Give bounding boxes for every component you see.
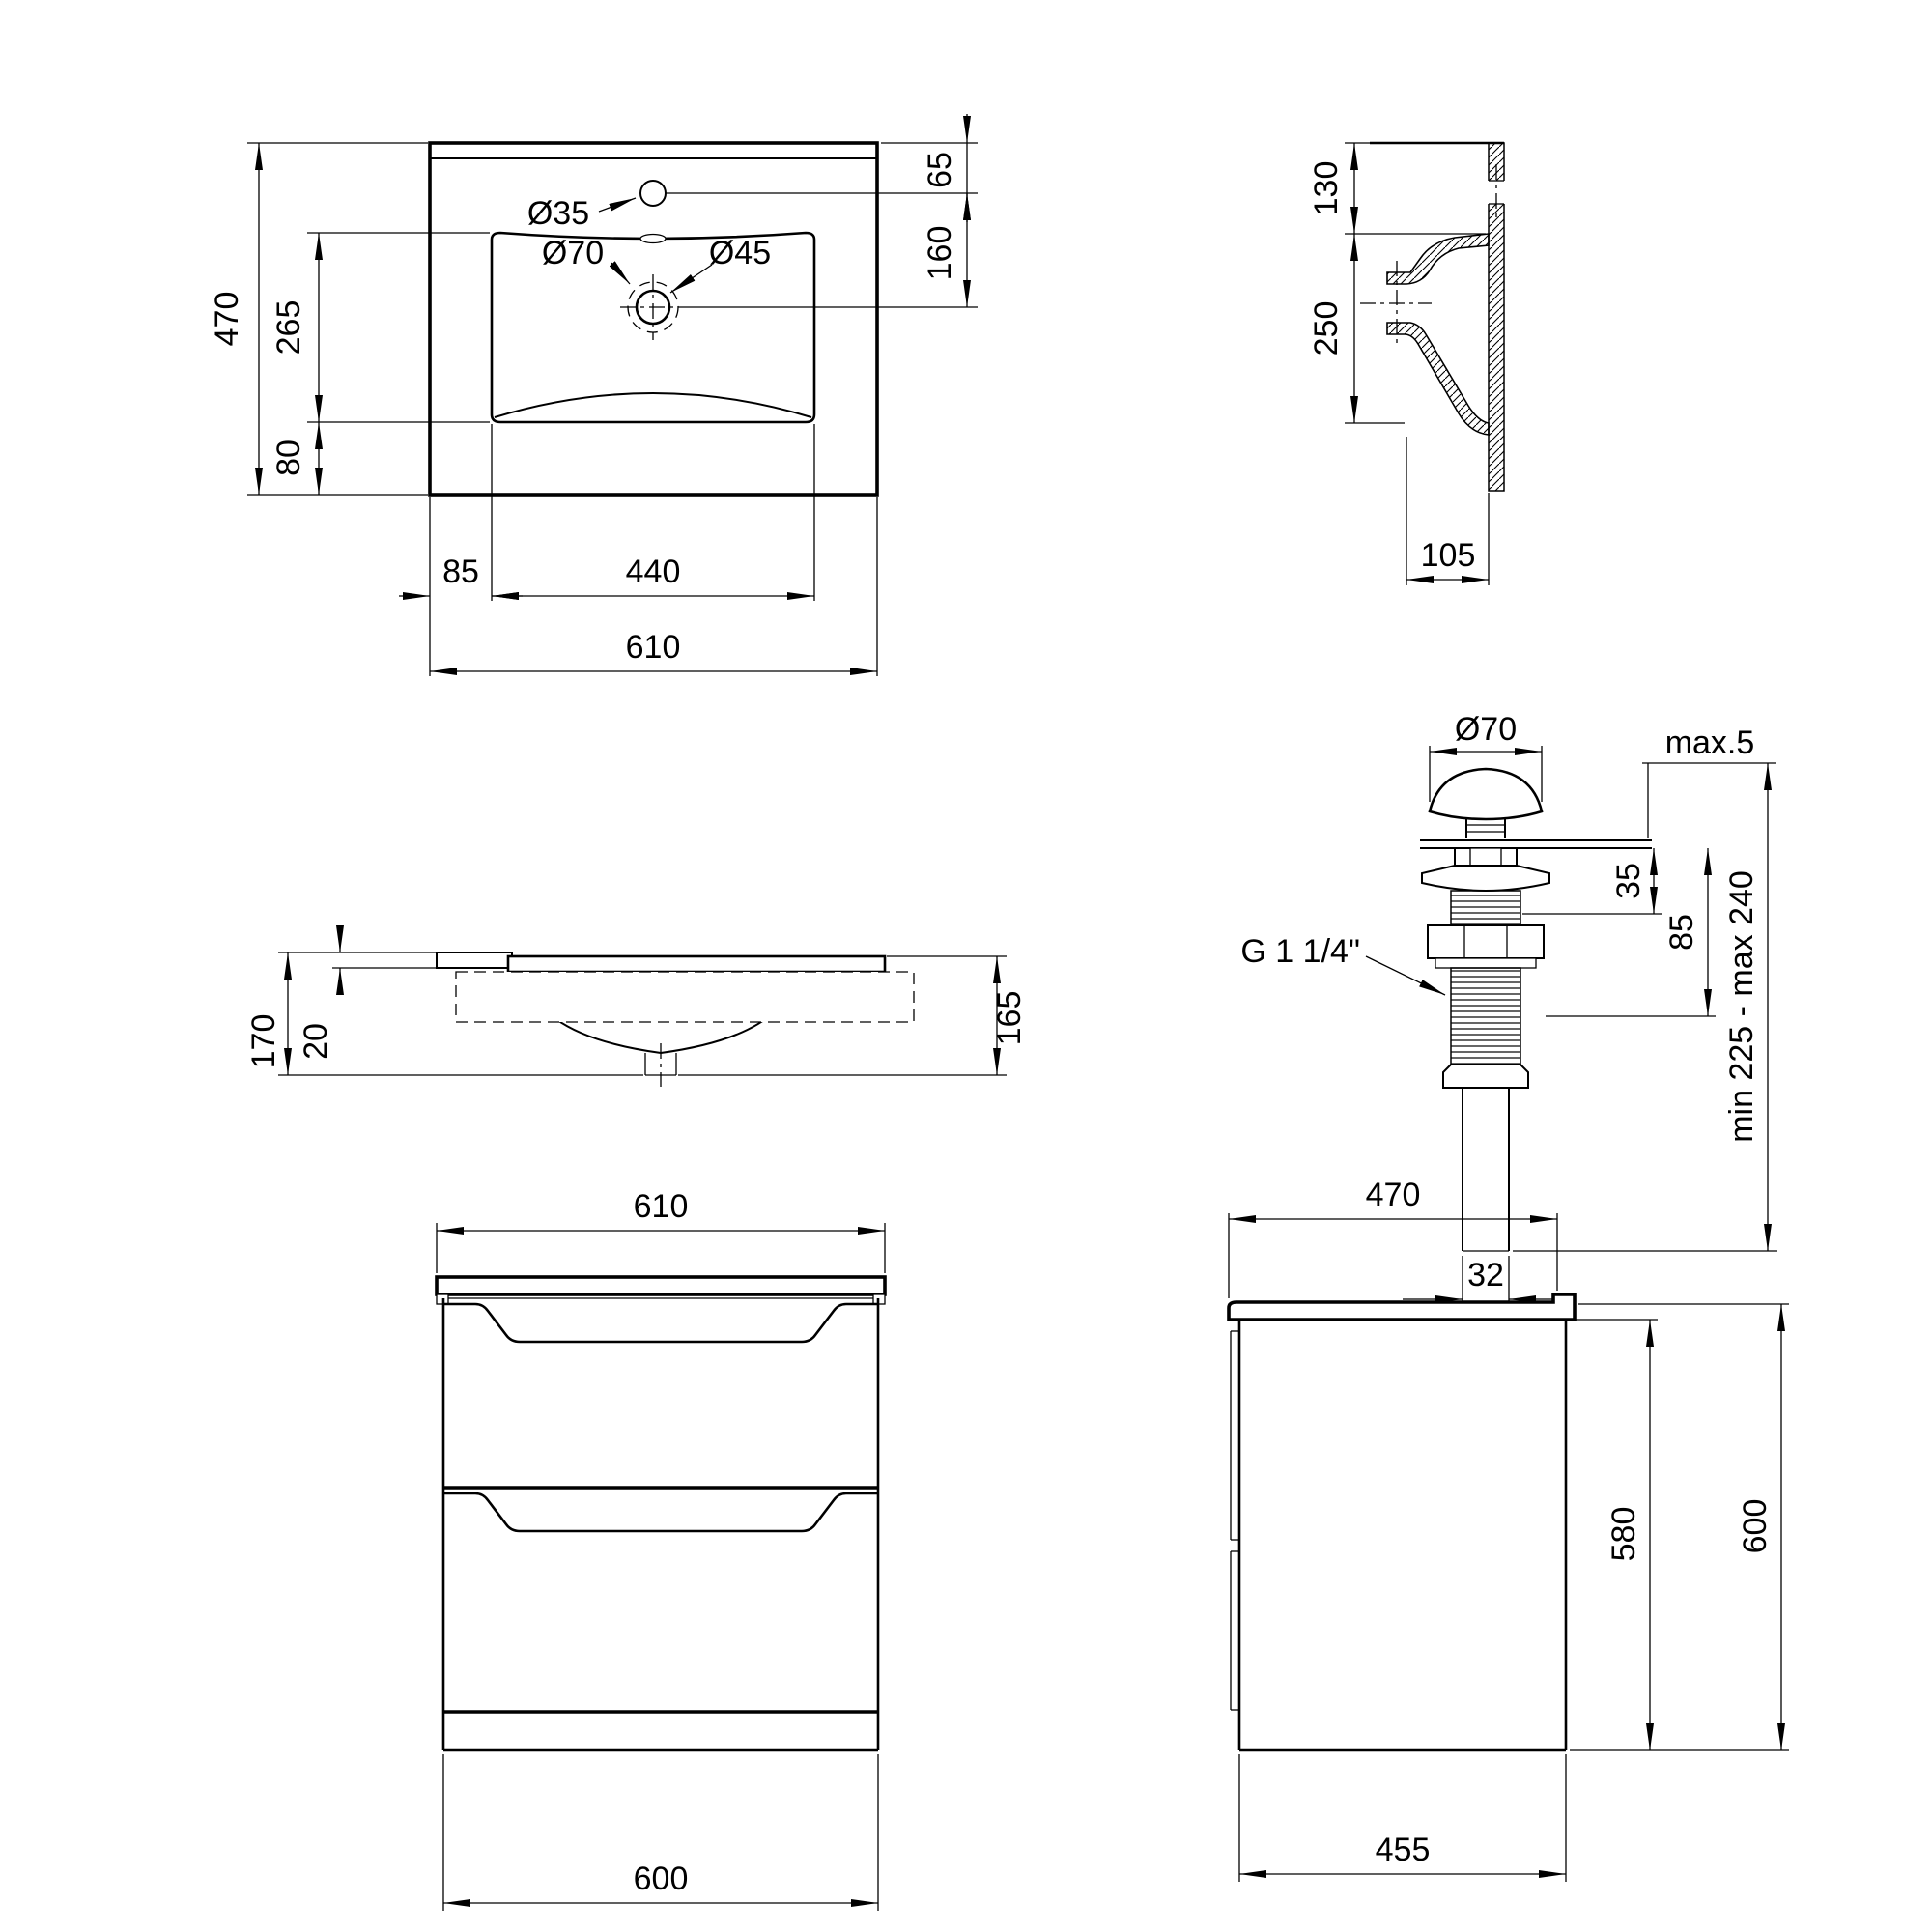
upper-thread — [1451, 891, 1520, 925]
section-lower-wall — [1387, 323, 1489, 435]
dim-580: 580 — [1570, 1320, 1658, 1750]
drain-stem — [1466, 819, 1505, 838]
dim-600-cabinet: 600 — [443, 1754, 878, 1911]
overflow-slot — [640, 235, 666, 243]
dim-cap-70-label: Ø70 — [1455, 711, 1517, 748]
vanity-technical-drawing: Ø35 Ø70 Ø45 470 265 80 — [0, 0, 1932, 1932]
dim-length-range-label: min 225 - max 240 — [1723, 870, 1760, 1143]
dim-105-label: 105 — [1421, 537, 1476, 574]
drawer-front-strip — [1231, 1331, 1239, 1710]
dim-85: 85 — [399, 554, 523, 596]
dim-20: 20 — [298, 925, 437, 1060]
drain-stub — [645, 1043, 676, 1087]
ceramic-deck-lines — [1420, 840, 1652, 848]
dim-455-label: 455 — [1376, 1832, 1431, 1868]
technical-drawing-page: Ø35 Ø70 Ø45 470 265 80 — [0, 0, 1932, 1932]
sink-top-view: Ø35 Ø70 Ø45 470 265 80 — [209, 114, 978, 676]
dim-32-label: 32 — [1467, 1257, 1504, 1293]
dim-65-label: 65 — [922, 152, 958, 188]
countertop-front — [437, 1277, 885, 1294]
washer — [1435, 958, 1536, 968]
dim-130: 130 — [1308, 143, 1486, 234]
dim-130-label: 130 — [1308, 161, 1345, 216]
drain-cap — [1430, 769, 1542, 819]
dim-610-label: 610 — [626, 629, 681, 666]
drawer1-handle-recess — [443, 1304, 878, 1342]
hidden-outline — [456, 972, 914, 1022]
drawer2-handle-recess — [443, 1493, 878, 1531]
dim-165-label: 165 — [991, 991, 1028, 1046]
dim-max5: max.5 — [1642, 724, 1776, 838]
dim-250-label: 250 — [1308, 301, 1345, 356]
drain-assembly-view: Ø70 max.5 35 85 min 225 - max 240 32 — [1240, 711, 1777, 1306]
section-upper-slab — [1387, 234, 1489, 284]
thread-callout: G 1 1/4" — [1240, 933, 1445, 995]
slab-front — [508, 956, 885, 972]
countertop-side — [1229, 1294, 1575, 1320]
dim-32: 32 — [1403, 1256, 1569, 1306]
dim-85-label: 85 — [442, 554, 479, 590]
long-thread — [1451, 968, 1520, 1065]
dim-265-label: 265 — [270, 300, 307, 355]
dim-length-range: min 225 - max 240 — [1513, 763, 1777, 1251]
dim-20-label: 20 — [298, 1023, 334, 1060]
dim-610-cabinet-label: 610 — [634, 1188, 689, 1225]
cabinet-front-view: 610 600 — [437, 1188, 885, 1911]
dim-600-side-label: 600 — [1737, 1499, 1774, 1554]
drain-flange — [1422, 866, 1549, 891]
drain-label: Ø45 — [709, 235, 771, 271]
dim-max5-label: max.5 — [1665, 724, 1755, 761]
dim-105: 105 — [1406, 437, 1489, 585]
dim-35-label: 35 — [1610, 863, 1647, 899]
dim-80-label: 80 — [270, 440, 307, 476]
dim-80: 80 — [270, 422, 319, 495]
sink-front-view: 170 20 165 — [245, 925, 1028, 1087]
drain-body — [1422, 848, 1549, 1251]
faucet-hole — [640, 181, 666, 206]
thread-label: G 1 1/4" — [1240, 933, 1360, 970]
dim-455: 455 — [1239, 1754, 1566, 1882]
dim-170-label: 170 — [245, 1014, 282, 1069]
slab-left-end — [437, 952, 512, 968]
sink-section-view: 130 250 105 — [1308, 143, 1506, 585]
collar — [1443, 1065, 1528, 1088]
drain-outer-label: Ø70 — [542, 235, 604, 271]
dim-470-side-label: 470 — [1366, 1177, 1421, 1213]
dim-610-cabinet: 610 — [437, 1188, 885, 1273]
dim-85-drain-label: 85 — [1663, 914, 1700, 951]
dim-160-label: 160 — [922, 226, 958, 281]
dim-580-label: 580 — [1605, 1507, 1642, 1562]
dim-470-label: 470 — [209, 292, 245, 347]
lock-nut — [1428, 925, 1544, 958]
faucet-hole-label: Ø35 — [527, 195, 589, 232]
dim-600-side: 600 — [1570, 1304, 1789, 1750]
dim-440-label: 440 — [626, 554, 681, 590]
dim-600-cabinet-label: 600 — [634, 1861, 689, 1897]
dim-610: 610 — [430, 629, 877, 671]
dim-440: 440 — [492, 554, 814, 596]
